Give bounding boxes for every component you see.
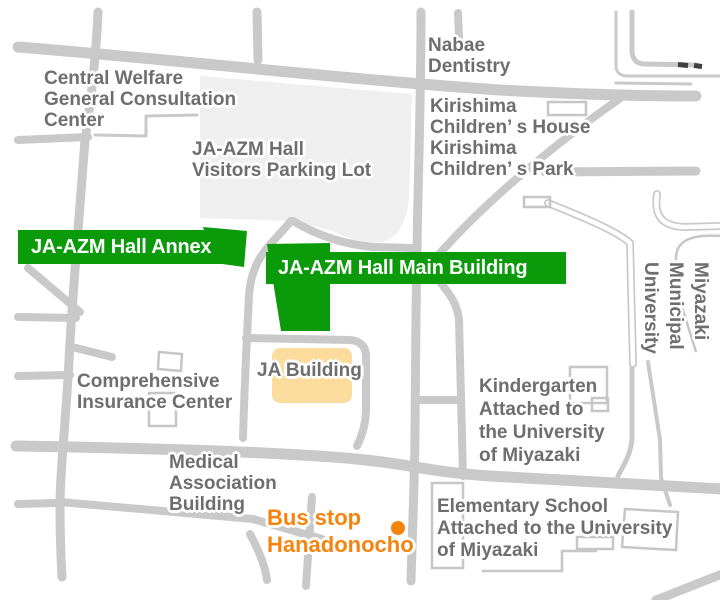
main-road-bottom [16,446,720,489]
label-miyazaki-municipal-university: Miyazaki Municipal University [638,262,713,354]
road-center-vertical [411,12,421,581]
label-ja-building: JA Building [257,360,362,381]
main-building-label-badge: JA-AZM Hall Main Building [266,252,566,284]
access-map: Central Welfare General Consultation Cen… [0,0,720,600]
label-kindergarten: Kindergarten Attached to the University … [479,375,605,467]
label-medical-association: Medical Association Building [169,452,277,515]
label-central-welfare: Central Welfare General Consultation Cen… [44,68,236,131]
label-comprehensive-insurance: Comprehensive Insurance Center [77,371,232,413]
label-visitors-parking: JA-AZM Hall Visitors Parking Lot [192,139,371,181]
label-nabae-dentistry: Nabae Dentistry [428,35,510,77]
label-kirishima: Kirishima Children’ s House Kirishima Ch… [430,96,590,180]
annex-label-badge: JA-AZM Hall Annex [18,230,233,264]
label-elementary-school: Elementary School Attached to the Univer… [437,496,672,562]
bus-stop-marker-icon [391,521,405,535]
